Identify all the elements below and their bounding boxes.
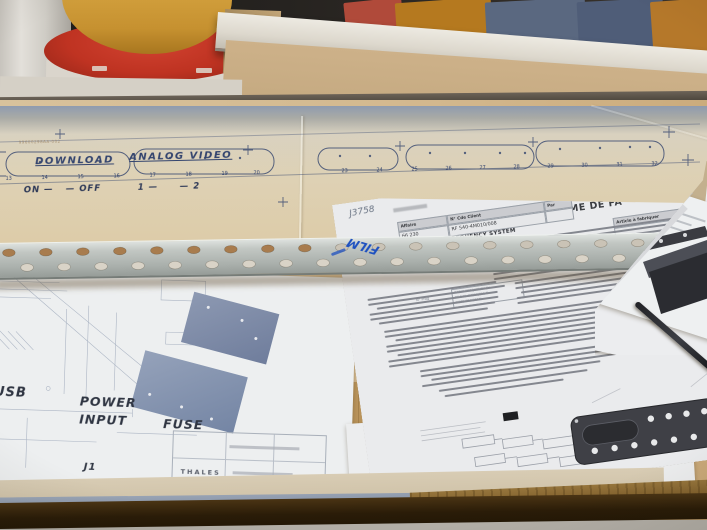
panel-number: 20 [253, 170, 260, 176]
panel-number: 23 [341, 168, 348, 174]
panel-switch-off: — OFF [66, 184, 102, 195]
cad-drawing-document: USB POWER INPUT FUSE J1 THALES [0, 266, 357, 506]
panel-part-ref: 99600298AA-002 [19, 139, 61, 145]
tape-label-speck [92, 66, 107, 71]
panel-number: 24 [376, 167, 383, 173]
panel-number: 27 [479, 165, 486, 171]
plate-hole [180, 405, 184, 409]
panel-drawing-labels: 99600298AA-002 DOWNLOAD ANALOG VIDEO 131… [0, 94, 707, 210]
plate-hole [210, 417, 214, 421]
plate-hole [206, 306, 210, 310]
panel-number: 16 [113, 173, 120, 179]
cad-label-input: INPUT [79, 411, 127, 427]
panel-switch-one: 1 — [138, 182, 159, 192]
panel-label-download: DOWNLOAD [35, 154, 114, 167]
panel-number: 13 [5, 176, 12, 182]
panel-number: 19 [221, 171, 228, 177]
panel-number: 32 [651, 161, 658, 167]
panel-number: 18 [185, 172, 192, 178]
plate-hole [148, 393, 152, 397]
panel-switch-on: ON — [24, 185, 54, 196]
cad-label-power: POWER [80, 393, 137, 410]
workbench-photo: 99600298AA-002 DOWNLOAD ANALOG VIDEO 131… [0, 0, 707, 530]
panel-number: 25 [411, 167, 418, 173]
cad-label-usb: USB [0, 385, 27, 401]
panel-number: 17 [149, 172, 156, 178]
panel-number: 30 [581, 163, 588, 169]
panel-number: 29 [547, 163, 554, 169]
panel-number: 15 [77, 174, 84, 180]
panel-label-analog-video: ANALOG VIDEO [129, 150, 232, 163]
tape-label-speck [196, 68, 212, 73]
panel-number: 31 [616, 162, 623, 168]
cad-label-j1: J1 [84, 462, 97, 473]
panel-number: 26 [445, 166, 452, 172]
panel-switch-two: — 2 [180, 181, 201, 191]
panel-number: 14 [41, 175, 48, 181]
panel-number: 28 [513, 164, 520, 170]
plate-hole [254, 337, 258, 341]
title-block-line [173, 457, 325, 463]
title-block-text-blur [229, 445, 299, 450]
plate-hole [240, 319, 244, 323]
